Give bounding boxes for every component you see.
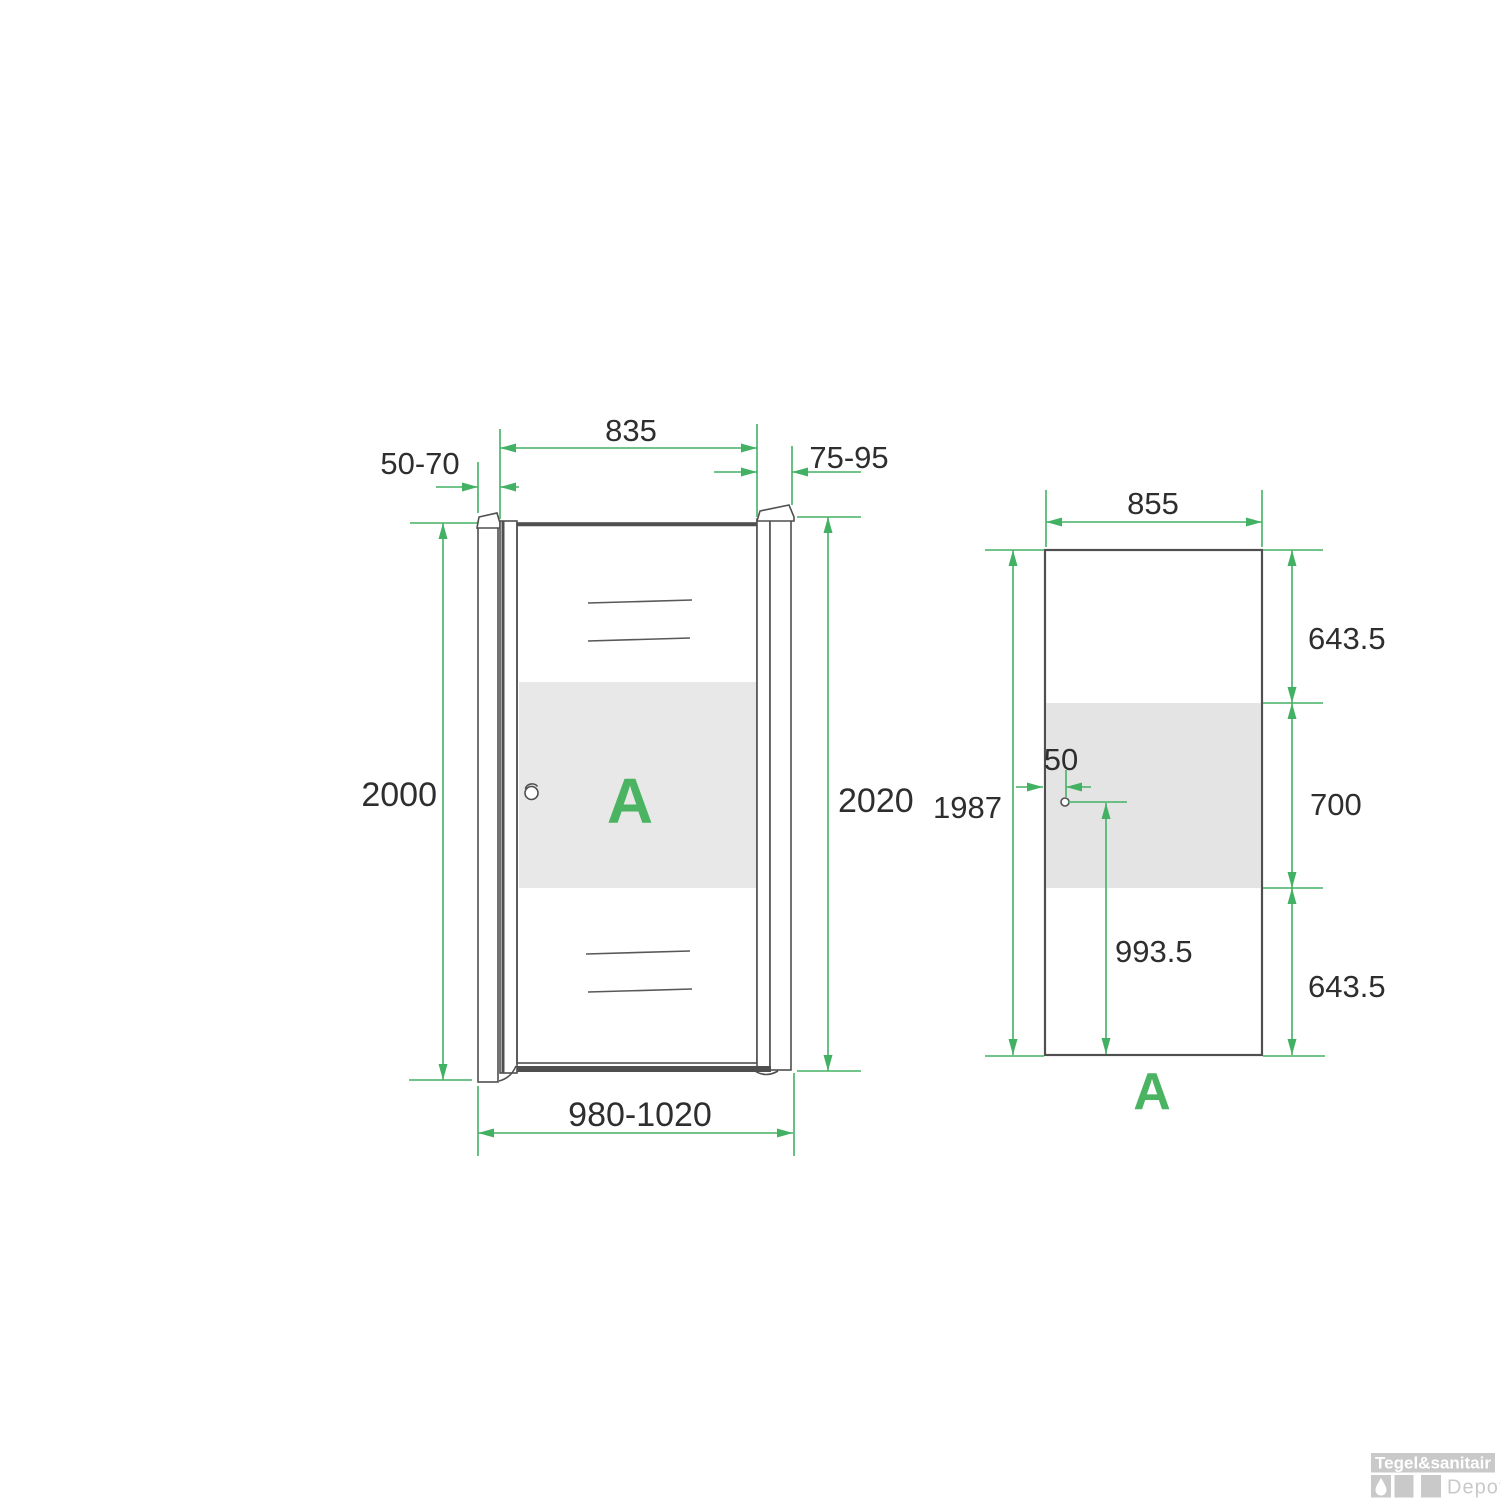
shower-door-dimension-diagram: A 835 50-70 75-95 20 <box>0 0 1500 1500</box>
dimension-arrowhead <box>478 1129 494 1138</box>
dimension-arrowhead <box>1288 872 1297 888</box>
glass-panel-drawing: 855 1987 643.5 700 643.5 50 993.5 A <box>933 486 1386 1121</box>
dimension-arrowhead <box>777 1129 793 1138</box>
glass-panel-letter: A <box>1133 1063 1171 1121</box>
dimension-arrowhead <box>439 523 448 539</box>
wall-profile-left <box>478 522 498 1082</box>
wall-profile-left-cap <box>477 513 500 528</box>
dimension-arrowhead <box>1288 703 1297 719</box>
dimension-arrowhead <box>741 468 757 477</box>
dimension-arrowhead <box>792 468 808 477</box>
wall-profile-right-cap <box>757 505 794 521</box>
watermark-logo: Tegel&sanitair Depot <box>1371 1453 1500 1499</box>
dimension-arrowhead <box>1288 888 1297 904</box>
wall-profile-right <box>770 518 791 1070</box>
technical-drawing-page: A 835 50-70 75-95 20 <box>0 0 1500 1500</box>
dim-label-handle-offset: 50 <box>1044 742 1078 777</box>
dimension-arrowhead <box>1027 783 1043 792</box>
dimension-arrowhead <box>439 1064 448 1080</box>
dimension-arrowhead <box>1246 518 1262 527</box>
door-edge-stile-right <box>757 519 770 1071</box>
dimension-arrowhead <box>1288 550 1297 566</box>
dimension-arrowhead <box>1288 687 1297 703</box>
dim-label-height-right: 2020 <box>838 782 914 820</box>
dim-label-wall-left: 50-70 <box>380 446 459 481</box>
watermark-brand-text: Tegel&sanitair <box>1375 1454 1491 1473</box>
dimension-arrowhead <box>500 444 516 453</box>
dimension-arrowhead <box>462 483 478 492</box>
handle-hole <box>1061 798 1069 806</box>
watermark-tile-2 <box>1395 1475 1414 1498</box>
dimension-arrowhead <box>1288 1039 1297 1055</box>
dimension-arrowhead <box>1009 1039 1018 1055</box>
front-panel-letter: A <box>607 765 653 837</box>
dimension-arrowhead <box>741 444 757 453</box>
door-handle-knob <box>525 787 538 800</box>
dimension-arrowhead <box>1009 550 1018 566</box>
dim-label-wall-right: 75-95 <box>809 440 888 475</box>
watermark-tile-3 <box>1421 1475 1441 1498</box>
dim-label-clear-top: 643.5 <box>1308 621 1386 656</box>
front-view-drawing: A 835 50-70 75-95 20 <box>361 413 913 1156</box>
dim-label-band-height: 700 <box>1310 787 1362 822</box>
dimension-arrowhead <box>824 517 833 533</box>
dim-label-clear-bottom: 643.5 <box>1308 969 1386 1004</box>
dimension-arrowhead <box>1046 518 1062 527</box>
glass-panel-frosted-band <box>1047 703 1261 888</box>
dimension-arrowhead <box>824 1055 833 1071</box>
dim-label-glass-height: 1987 <box>933 790 1002 825</box>
dim-label-handle-from-bottom: 993.5 <box>1115 934 1193 969</box>
dim-label-height-left: 2000 <box>361 776 437 814</box>
dim-label-top-width: 835 <box>605 413 657 448</box>
dim-label-total-width: 980-1020 <box>568 1096 712 1134</box>
dimension-arrowhead <box>500 483 516 492</box>
watermark-sub-text: Depot <box>1447 1477 1500 1499</box>
dim-label-glass-width: 855 <box>1127 486 1179 521</box>
